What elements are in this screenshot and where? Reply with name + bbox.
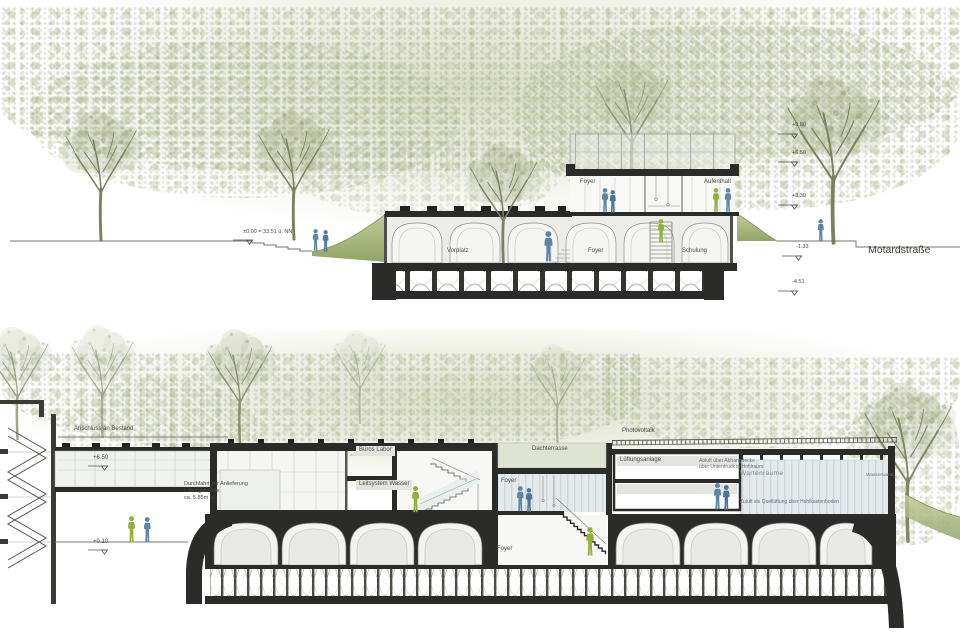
durchfahrt-note-line: ca. 5.85m l.L. — [184, 495, 248, 502]
room-label-bueros-labor: Büros Labor — [356, 446, 395, 456]
room-label-wasser: Wasser — [389, 481, 409, 487]
level-mark: +3.30 — [792, 193, 806, 199]
datum-label: ±0.00 = 33.51 ü. NN — [243, 229, 292, 235]
room-label-schulung: Schulung — [682, 248, 707, 255]
level-mark: +6.50 — [93, 455, 108, 462]
room-label-leitsystem-wasser: Leitsystem Wasser — [356, 480, 412, 490]
level-mark: +0.10 — [93, 539, 108, 546]
zuluft-note: Zuluft als Quellüftung über Hohlkastenbo… — [740, 500, 839, 506]
room-label-foyer-hall: Foyer — [588, 248, 603, 255]
photovoltaik-label: Photovoltaik — [622, 428, 655, 435]
durchfahrt-note-line: Durchfahrt zur Anlieferung — [184, 481, 248, 488]
room-label-bueros: Büros — [359, 447, 375, 453]
durchfahrt-note: Durchfahrt zur Anlieferung Laborgebäude … — [184, 481, 248, 501]
room-label-vorplatz: Vorplatz — [447, 248, 469, 255]
room-label-leitsystem: Leitsystem — [359, 481, 388, 487]
level-mark: +6.50 — [792, 150, 806, 156]
room-label-foyer-lower: Foyer — [497, 546, 512, 553]
room-label-lueftungsanlage: Lüftungsanlage — [620, 457, 661, 464]
level-mark: -1.33 — [796, 244, 809, 250]
level-mark: +9.80 — [792, 122, 806, 128]
durchfahrt-note-line: Laborgebäude — [184, 488, 248, 495]
room-label-aufenthalt: Aufenthalt — [704, 179, 731, 186]
anschluss-label: Anschluss an Bestand — [74, 426, 133, 433]
street-label: Motardstraße — [868, 245, 930, 257]
labels: ±0.00 = 33.51 ü. NN Motardstraße +9.80 +… — [0, 0, 960, 640]
architectural-sections-page: ±0.00 = 33.51 ü. NN Motardstraße +9.80 +… — [0, 0, 960, 640]
level-mark: -4.51 — [792, 279, 805, 285]
room-label-labor: Labor — [376, 447, 391, 453]
room-label-foyer-upper: Foyer — [501, 478, 516, 485]
abluft-note: Abluft über Abhangdecke über Unterdruck … — [699, 458, 763, 470]
room-label-wartenraeume: Wartenräume — [740, 470, 784, 477]
room-label-foyer: Foyer — [580, 179, 595, 186]
room-label-dachterrasse: Dachterrasse — [532, 446, 568, 453]
wasserwand-label: Wasserwand — [866, 473, 894, 478]
